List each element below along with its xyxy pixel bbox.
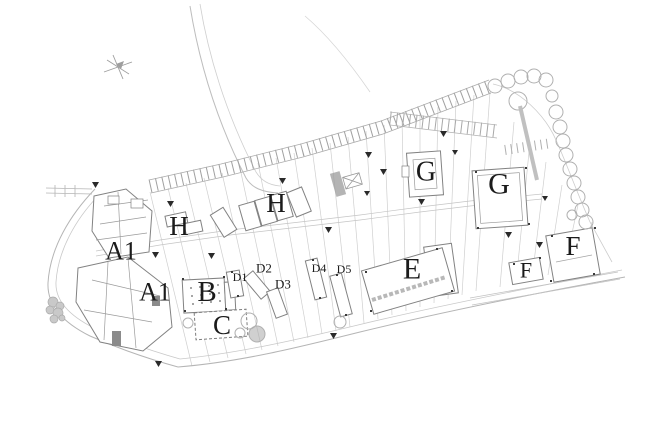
road-southeast-edge (470, 272, 620, 305)
trellis-structure (343, 173, 363, 189)
tree-icon (579, 215, 593, 229)
tree-icon (546, 90, 558, 102)
marker-triangle-icon (505, 232, 512, 238)
label-a1-lower: A1 (139, 278, 171, 307)
road-west-stub (46, 185, 92, 197)
substation-structure (330, 171, 346, 197)
tree-icon (549, 105, 563, 119)
tree-icon (183, 318, 193, 328)
marker-triangle-icon (440, 131, 447, 137)
tree-icon (249, 326, 265, 342)
marker-triangle-icon (152, 252, 159, 258)
road-top-left-edge (200, 4, 280, 186)
tree-icon (514, 70, 528, 84)
parking-band-g-stalls (390, 118, 497, 131)
site-plan-page: A1 A1 B C D1 D2 D3 D4 D5 E F F G G H H (0, 0, 660, 440)
label-d3: D3 (275, 277, 291, 292)
label-d5: D5 (337, 262, 352, 276)
label-e: E (403, 253, 421, 286)
marker-triangle-icon (536, 242, 543, 248)
marker-triangle-icon (452, 150, 458, 155)
tree-icon (334, 316, 346, 328)
marker-triangle-icon (208, 253, 215, 259)
label-g-left: G (416, 157, 436, 188)
label-b: B (197, 276, 216, 308)
marker-triangle-icon (325, 227, 332, 233)
bush-cluster (46, 297, 65, 323)
marker-triangle-icon (418, 199, 425, 205)
tree-icon (501, 74, 515, 88)
road-top-left (190, 6, 278, 193)
site-plan-drawing: A1 A1 B C D1 D2 D3 D4 D5 E F F G G H H (0, 0, 660, 440)
road-top-right (305, 16, 370, 92)
label-d4: D4 (312, 261, 327, 275)
label-h-right: H (266, 188, 286, 218)
label-d1: D1 (233, 270, 248, 284)
tree-icon (567, 210, 577, 220)
marker-triangle-icon (167, 201, 174, 207)
label-a1-upper: A1 (105, 237, 137, 266)
marker-triangle-icon (155, 361, 162, 367)
north-compass-icon (104, 55, 132, 79)
tree-icon (539, 73, 553, 87)
utility-structures (330, 171, 362, 197)
label-d2: D2 (256, 261, 272, 276)
marker-triangle-icon (365, 152, 372, 158)
label-f-left: F (520, 258, 532, 283)
label-h-left: H (169, 211, 189, 241)
tree-icon (571, 190, 585, 204)
marker-triangle-icon (542, 196, 548, 201)
tree-icon (556, 134, 570, 148)
marker-triangle-icon (92, 182, 99, 188)
marker-triangle-icon (364, 191, 370, 196)
label-c: C (213, 310, 231, 340)
label-f-right: F (565, 231, 580, 261)
tree-icon (559, 148, 573, 162)
tree-icon (553, 120, 567, 134)
label-g-right: G (488, 168, 510, 201)
